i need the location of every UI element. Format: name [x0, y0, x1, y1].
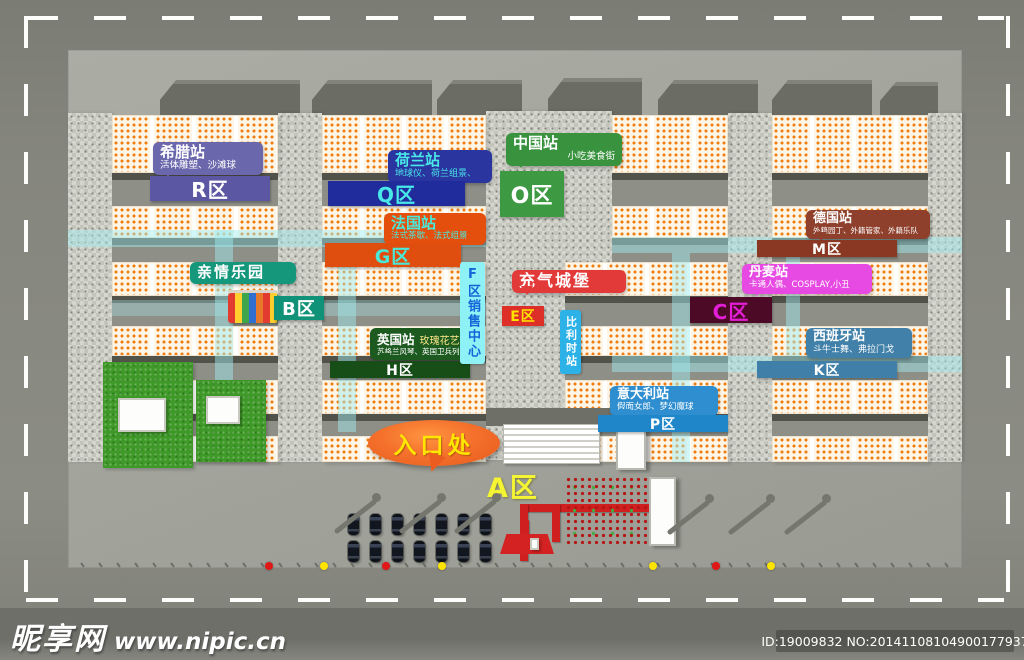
family-park-label: 亲情乐园	[197, 264, 289, 281]
parked-car	[436, 514, 447, 535]
curb-dot	[320, 562, 328, 570]
crowd-dots	[565, 476, 653, 546]
pedestrian-strip	[278, 113, 322, 462]
stall-row	[772, 115, 928, 173]
aisle	[772, 414, 928, 436]
zone-banner-g: G区	[325, 243, 461, 267]
parked-car	[480, 514, 491, 535]
ticket-booth	[616, 426, 646, 470]
station-subtitle: 假面女郎、梦幻魔球	[617, 403, 711, 413]
zone-banner-o: O区	[500, 171, 564, 217]
lawn-building	[118, 398, 166, 432]
building-roof	[312, 80, 432, 116]
stall-row	[112, 326, 278, 356]
station-title-line: 英国站 玫瑰花艺	[377, 330, 473, 348]
parked-car	[436, 541, 447, 562]
sales-center-banner: F区销售中心	[460, 262, 485, 364]
station-title: 希腊站	[160, 144, 256, 161]
building-roof	[658, 80, 758, 116]
watermark-site-name: 昵享网	[10, 622, 106, 657]
station-title: 中国站	[513, 135, 615, 152]
stall-row	[772, 380, 928, 414]
walk-path	[338, 247, 356, 432]
zone-banner-k: K区	[757, 361, 897, 378]
station-title: 英国站	[377, 332, 415, 347]
station-title: 荷兰站	[395, 152, 485, 169]
parked-car	[480, 541, 491, 562]
zone-banner-h: H区	[330, 361, 470, 378]
parked-car	[392, 541, 403, 562]
zone-banner-e: E区	[502, 306, 544, 326]
curb-dot	[767, 562, 775, 570]
station-title: 法国站	[391, 215, 479, 232]
entrance-balloon: 入口处	[368, 420, 500, 466]
station-bubble-spain: 西班牙站 斗牛士舞、弗拉门戈	[806, 328, 912, 358]
awning-sign	[530, 538, 539, 550]
station-bubble-netherlands: 荷兰站 地球仪、荷兰组景、	[388, 150, 492, 183]
station-subtitle: 卡通人偶、COSPLAY,小丑	[749, 281, 865, 291]
stall-row	[612, 206, 728, 238]
pedestrian-strip	[928, 113, 962, 462]
station-tagline: 玫瑰花艺	[420, 336, 460, 347]
building-roof	[160, 80, 300, 116]
curb-dot	[712, 562, 720, 570]
zone-banner-c: C区	[690, 297, 772, 323]
entrance-gate-post	[552, 504, 560, 542]
watermark-logo: 昵享网www.nipic.cn	[10, 614, 286, 658]
station-subtitle: 苏格兰风琴、英国卫兵列队	[377, 348, 473, 357]
zone-banner-p: P区	[598, 415, 728, 432]
station-subtitle: 外籍园丁、外籍管家、外籍乐队	[813, 227, 923, 236]
aisle	[612, 173, 728, 206]
road-dash-right	[1006, 16, 1010, 602]
white-kiosk	[649, 477, 676, 546]
curb-dot	[382, 562, 390, 570]
zone-banner-b: B区	[274, 296, 324, 320]
road-dash-top	[26, 16, 1004, 20]
zone-banner-q: Q区	[328, 181, 465, 206]
inflatable-castle-label: 充气城堡	[519, 272, 619, 290]
stall-row	[772, 436, 928, 462]
parked-car	[370, 541, 381, 562]
parked-car	[458, 541, 469, 562]
station-bubble-france: 法国站 法式茶歇、法式组景	[384, 213, 486, 245]
station-subtitle: 斗牛士舞、弗拉门戈	[813, 345, 905, 355]
station-bubble-germany: 德国站 外籍园丁、外籍管家、外籍乐队	[806, 210, 930, 239]
exhibition-site-plan: 希腊站 活体雕塑、沙滩球 R区 荷兰站 地球仪、荷兰组景、 Q区 中国站 小吃美…	[0, 0, 1024, 660]
parked-car	[348, 541, 359, 562]
station-bubble-china: 中国站 小吃美食街	[506, 133, 622, 166]
building-roof	[772, 80, 872, 116]
lawn-building	[206, 396, 240, 424]
station-bubble-greece: 希腊站 活体雕塑、沙滩球	[153, 142, 263, 175]
curb-dot	[649, 562, 657, 570]
entrance-awning	[500, 534, 554, 554]
stall-row	[612, 115, 728, 173]
station-banner-belgium: 比利时站	[560, 310, 581, 374]
watermark-site-url: www.nipic.cn	[114, 629, 286, 655]
zone-banner-r: R区	[150, 176, 270, 201]
station-bubble-denmark: 丹麦站 卡通人偶、COSPLAY,小丑	[742, 264, 872, 294]
station-bubble-italy: 意大利站 假面女郎、梦幻魔球	[610, 386, 718, 416]
parked-car	[370, 514, 381, 535]
station-subtitle: 小吃美食街	[513, 152, 615, 163]
station-title: 西班牙站	[813, 330, 905, 345]
parked-car	[414, 541, 425, 562]
inflatable-castle-bubble: 充气城堡	[512, 270, 626, 293]
curb-dot	[265, 562, 273, 570]
aisle	[772, 173, 928, 206]
family-park-bubble: 亲情乐园	[190, 262, 296, 284]
station-title: 丹麦站	[749, 266, 865, 281]
road-dash-bottom	[26, 598, 1004, 602]
stall-row	[565, 326, 728, 356]
watermark-id: ID:19009832 NO:20141108104900177937	[776, 630, 1014, 652]
station-title: 意大利站	[617, 388, 711, 403]
station-subtitle: 活体雕塑、沙滩球	[160, 161, 256, 172]
turnstile-gates	[503, 424, 600, 464]
entrance-label: 入口处	[394, 426, 475, 460]
playground-castle	[228, 293, 278, 323]
zone-banner-m: M区	[757, 240, 897, 257]
station-title: 德国站	[813, 212, 923, 227]
road-dash-left	[24, 16, 28, 602]
curb-dot	[438, 562, 446, 570]
